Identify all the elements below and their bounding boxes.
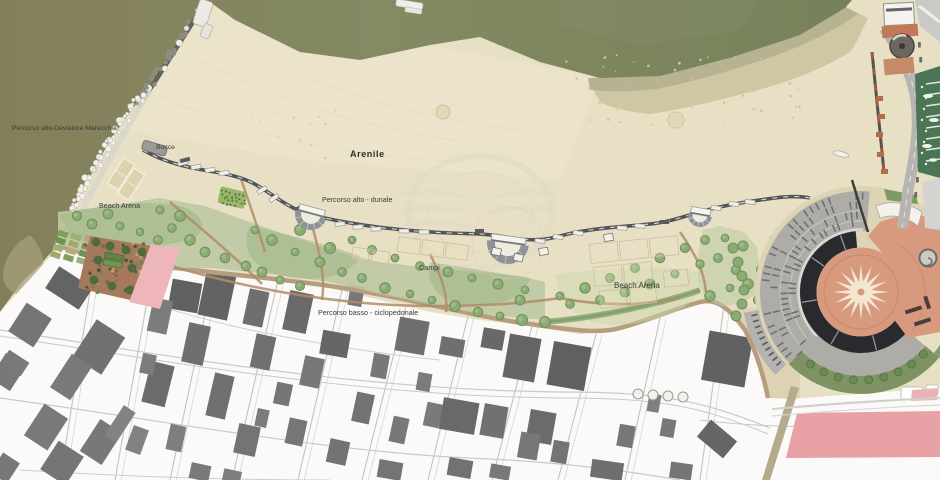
- svg-text:Beach Arena: Beach Arena: [99, 201, 140, 210]
- svg-text:Percorso basso - ciclopedonale: Percorso basso - ciclopedonale: [318, 308, 418, 317]
- svg-text:Arenile: Arenile: [350, 149, 385, 159]
- svg-text:Beach Arena: Beach Arena: [614, 281, 660, 290]
- svg-text:Percorso alto - dunale: Percorso alto - dunale: [322, 195, 392, 204]
- svg-text:Percorso alto-Deviatore Marecc: Percorso alto-Deviatore Marecchia: [12, 125, 117, 132]
- svg-text:Campi: Campi: [419, 263, 440, 272]
- svg-text:Bocce: Bocce: [156, 144, 175, 151]
